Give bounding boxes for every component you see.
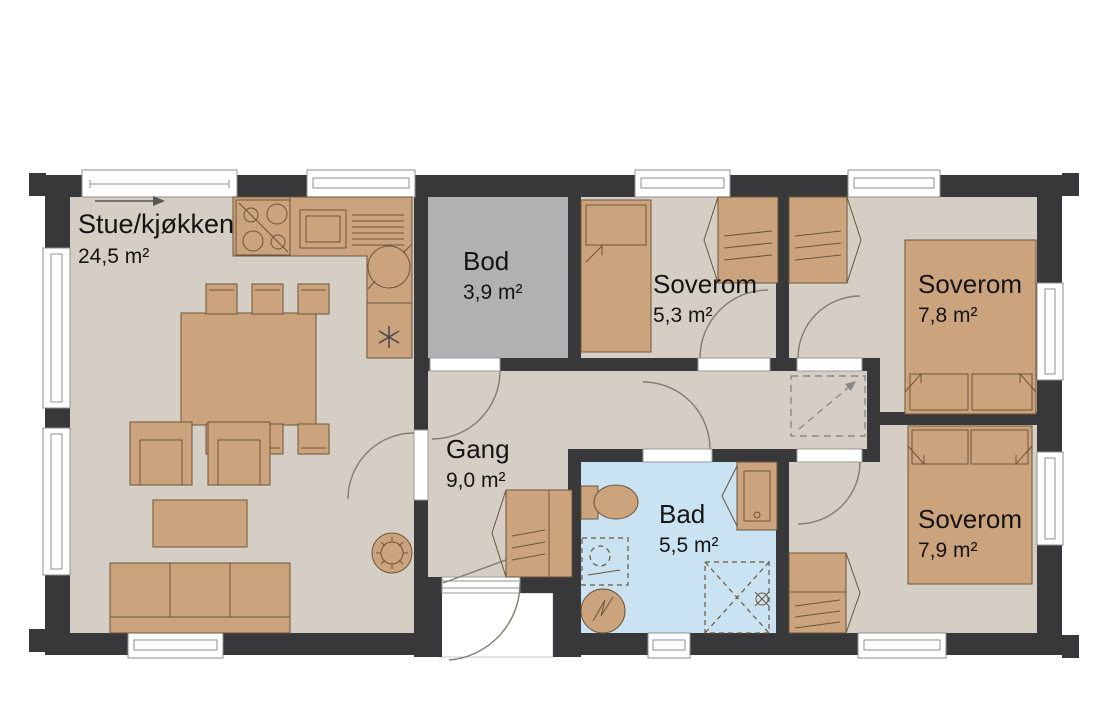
wood-stove-icon xyxy=(372,533,412,573)
floorplan-drawing xyxy=(0,0,1110,720)
sliding-window xyxy=(82,170,237,197)
room-label-soverom-7-9: Soverom 7,9 m² xyxy=(918,506,1022,561)
room-area: 5,3 m² xyxy=(653,305,757,326)
room-name: Soverom xyxy=(918,271,1022,297)
window-icon xyxy=(858,633,946,658)
room-label-bad: Bad 5,5 m² xyxy=(659,501,719,556)
corner-post xyxy=(29,173,46,196)
corner-post xyxy=(1062,635,1079,658)
water-heater-icon xyxy=(581,589,625,633)
window-icon xyxy=(307,170,415,197)
floorplan: Stue/kjøkken 24,5 m² Bod 3,9 m² Soverom … xyxy=(0,0,1110,720)
window-icon xyxy=(1037,452,1063,545)
room-label-bod: Bod 3,9 m² xyxy=(463,248,523,303)
window-icon xyxy=(648,633,690,658)
toilet-icon xyxy=(581,485,638,519)
sofa-icon xyxy=(110,563,290,633)
room-area: 7,8 m² xyxy=(918,305,1022,326)
entry-porch xyxy=(438,593,553,657)
room-label-soverom-7-8: Soverom 7,8 m² xyxy=(918,271,1022,326)
dining-table-icon xyxy=(181,313,316,425)
coffee-table-icon xyxy=(153,500,247,547)
room-name: Soverom xyxy=(918,506,1022,532)
room-area: 3,9 m² xyxy=(463,282,523,303)
room-area: 9,0 m² xyxy=(446,470,510,491)
room-area: 5,5 m² xyxy=(659,535,719,556)
corner-post xyxy=(29,629,46,652)
window-icon xyxy=(43,428,70,575)
room-label-gang: Gang 9,0 m² xyxy=(446,436,510,491)
room-area: 7,9 m² xyxy=(918,540,1022,561)
dining-chair xyxy=(206,284,237,314)
room-area: 24,5 m² xyxy=(78,246,234,267)
dining-chair xyxy=(252,284,283,314)
window-icon xyxy=(848,170,940,197)
room-name: Gang xyxy=(446,436,510,462)
corner-post xyxy=(1062,173,1079,196)
room-label-soverom-5-3: Soverom 5,3 m² xyxy=(653,271,757,326)
window-icon xyxy=(43,248,70,408)
window-icon xyxy=(1037,283,1063,380)
armchair-icon xyxy=(208,422,270,485)
bed-icon xyxy=(581,200,651,352)
window-icon xyxy=(635,170,730,197)
window-icon xyxy=(128,633,223,658)
room-name: Bad xyxy=(659,501,719,527)
room-name: Soverom xyxy=(653,271,757,297)
room-label-stue: Stue/kjøkken 24,5 m² xyxy=(78,211,234,267)
armchair-icon xyxy=(130,422,192,485)
room-name: Stue/kjøkken xyxy=(78,211,234,238)
room-name: Bod xyxy=(463,248,523,274)
bed-icon xyxy=(905,240,1036,414)
dining-chair xyxy=(298,284,329,314)
dining-chair xyxy=(298,424,329,454)
